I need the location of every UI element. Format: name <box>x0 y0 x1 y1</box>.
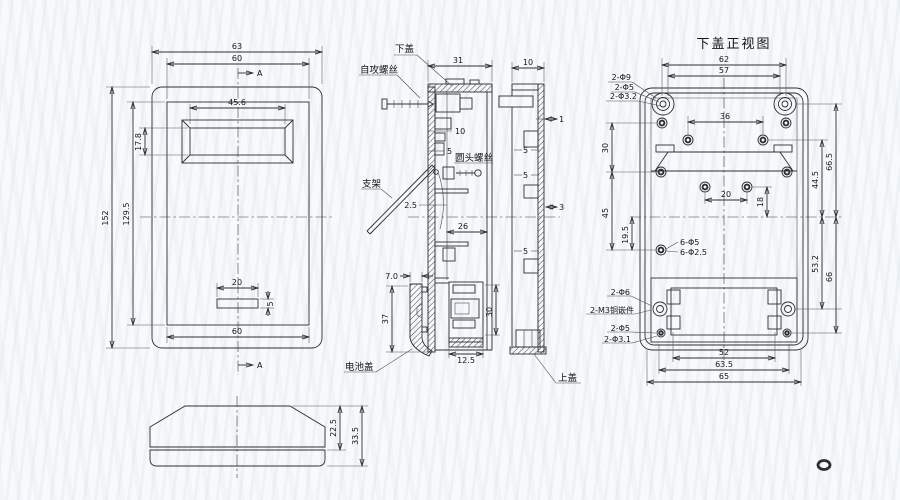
engineering-drawing: 63 60 A 45.6 17.8 152 129.5 20 5 60 <box>0 0 900 500</box>
dim-bv-445: 44.5 <box>811 171 820 189</box>
bottom-view: 下盖正视图 <box>586 37 844 386</box>
dim-window-height: 17.8 <box>134 133 143 151</box>
dim-bv-45: 45 <box>601 208 610 218</box>
dim-bv-195: 19.5 <box>621 226 630 244</box>
bottom-view-title: 下盖正视图 <box>696 37 771 52</box>
dim-profile-upper: 22.5 <box>329 419 338 437</box>
dim-slot-height: 5 <box>266 301 275 306</box>
dim-upper-rib2: 5 <box>523 171 528 180</box>
dim-bv-30: 30 <box>601 143 610 153</box>
dim-bv-66: 66 <box>825 272 834 282</box>
dim-bv-57: 57 <box>719 66 729 75</box>
dim-bv-532: 53.2 <box>811 255 820 273</box>
hole-label-2d9: 2-Φ9 <box>612 73 631 82</box>
dim-battery-125: 12.5 <box>457 356 475 365</box>
hole-label-2d5b: 2-Φ5 <box>611 324 630 333</box>
dim-battery-cover-width: 7.0 <box>385 272 398 281</box>
battery-cover-section: 7.0 37 电池盖 <box>344 272 433 373</box>
battery-cover-label: 电池盖 <box>345 361 374 373</box>
dim-slot-width: 20 <box>232 278 242 287</box>
section-a-bottom: A <box>257 361 263 370</box>
dim-battery-cover-height: 37 <box>381 314 390 324</box>
section-views: 7.0 37 电池盖 自攻螺丝 下盖 31 <box>344 43 581 384</box>
round-head-screw-label: 圆头螺丝 <box>455 152 493 164</box>
hole-label-2d31: 2-Φ3.1 <box>604 335 631 344</box>
dim-wall-25: 2.5 <box>404 201 417 210</box>
dim-rib-5: 5 <box>447 147 452 156</box>
dim-rib-10: 10 <box>455 127 465 136</box>
dim-bv-36: 36 <box>720 112 730 121</box>
dim-bv-52: 52 <box>719 348 729 357</box>
grommet-ring <box>818 461 830 470</box>
profile-view: 22.5 33.5 <box>150 396 368 478</box>
battery-compartment <box>651 278 842 342</box>
dim-bv-18: 18 <box>756 197 765 207</box>
dim-upper-rib3: 5 <box>523 247 528 256</box>
hole-label-6d5: 6-Φ5 <box>680 238 699 247</box>
hole-label-6d25: 6-Φ2.5 <box>680 248 707 257</box>
dim-bv-62: 62 <box>719 55 729 64</box>
dim-front-height-outer: 152 <box>101 210 110 225</box>
dim-upper-wall: 1 <box>559 115 564 124</box>
dim-bv-65: 65 <box>719 372 729 381</box>
dim-battery-30: 30 <box>485 307 494 317</box>
dim-bv-665: 66.5 <box>825 153 834 171</box>
hole-label-2d5: 2-Φ5 <box>615 83 634 92</box>
dim-front-width-bottom: 60 <box>232 327 242 336</box>
dim-upper-3: 3 <box>559 203 564 212</box>
dim-window-width: 45.6 <box>228 98 246 107</box>
front-view: 63 60 A 45.6 17.8 152 129.5 20 5 60 <box>101 42 334 375</box>
dim-bv-635: 63.5 <box>715 360 733 369</box>
dim-upper-rib1: 5 <box>523 146 528 155</box>
dim-front-width-outer: 63 <box>232 42 242 51</box>
upper-cover-section: 10 1 5 5 5 3 上盖 <box>499 58 581 384</box>
dim-profile-total: 33.5 <box>351 427 360 445</box>
dim-front-width-inner: 60 <box>232 54 242 63</box>
hole-label-2d32: 2-Φ3.2 <box>610 92 637 101</box>
section-a-top: A <box>257 69 263 78</box>
self-tapping-screw-label: 自攻螺丝 <box>360 64 398 76</box>
dim-bv-20: 20 <box>721 190 731 199</box>
hole-label-m3: 2-M3铜嵌件 <box>590 305 634 315</box>
dim-front-height-inner: 129.5 <box>122 203 131 226</box>
dim-upper-width: 10 <box>523 58 533 67</box>
dim-section-width: 31 <box>453 56 463 65</box>
lower-cover-label: 下盖 <box>395 43 415 55</box>
bracket-label: 支架 <box>362 178 382 190</box>
dim-cavity-26: 26 <box>458 222 468 231</box>
hole-label-2d6: 2-Φ6 <box>611 288 630 297</box>
upper-cover-label: 上盖 <box>558 372 578 384</box>
